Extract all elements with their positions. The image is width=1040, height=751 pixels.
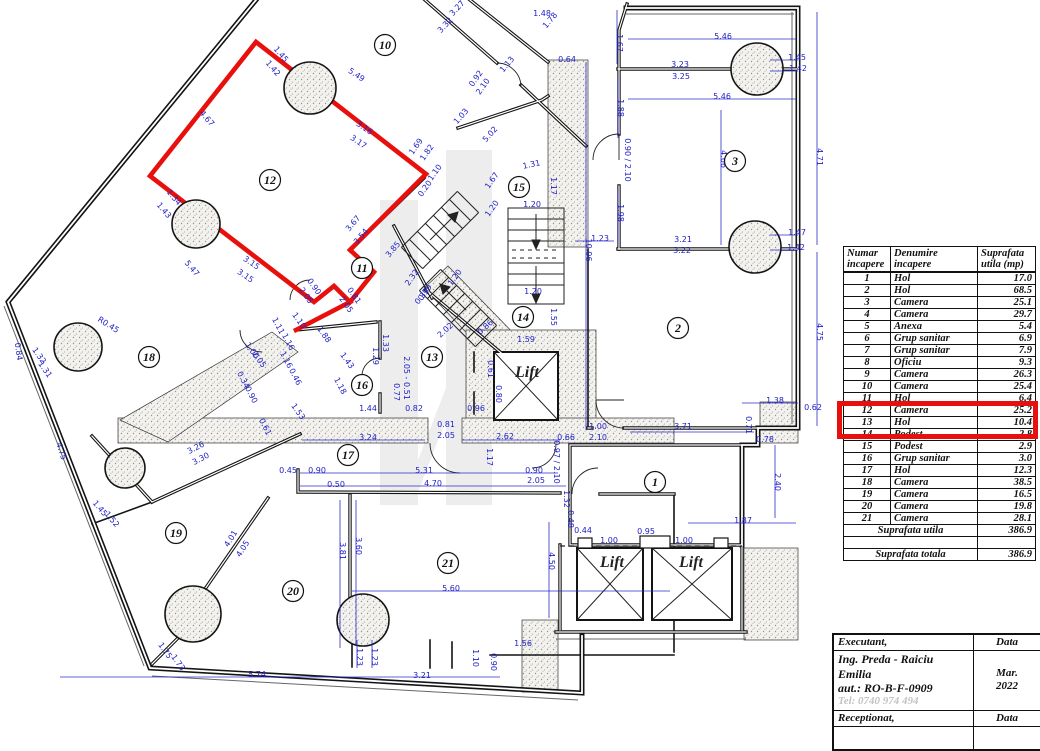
dimension-label: 1.10 <box>426 163 444 183</box>
dimension-label: 5.46 <box>714 32 732 41</box>
room-number: 11 <box>356 261 367 275</box>
table-cell: 18 <box>844 477 891 489</box>
table-row: 20Camera19.8 <box>844 501 1036 513</box>
table-cell: 26.3 <box>978 369 1036 381</box>
table-cell: Camera <box>891 501 978 513</box>
table-row: 17Hol12.3 <box>844 465 1036 477</box>
table-row: 2Hol68.5 <box>844 285 1036 297</box>
room-number: 19 <box>170 526 182 540</box>
dimension-label: 1.43 <box>338 351 356 371</box>
table-total-row: Suprafata totala386.9 <box>844 549 1036 561</box>
table-cell: Oficiu <box>891 357 978 369</box>
dimension-label: 0.45 <box>279 466 297 475</box>
table-cell: 4 <box>844 309 891 321</box>
table-row: 18Camera38.5 <box>844 477 1036 489</box>
dimension-label: 1.44 <box>359 404 377 413</box>
table-cell: 16.5 <box>978 489 1036 501</box>
table-cell: 17 <box>844 465 891 477</box>
empty-cell <box>834 727 974 749</box>
lift-label: Lift <box>599 554 625 571</box>
table-cell: 68.5 <box>978 285 1036 297</box>
dimension-label: 1.67 <box>615 34 624 52</box>
dimension-label: 0.96 <box>467 404 485 413</box>
table-cell: 13 <box>844 417 891 429</box>
room-number: 3 <box>731 154 738 168</box>
table-cell: Hol <box>891 285 978 297</box>
dimension-label: 3.24 <box>359 433 377 442</box>
executant-authorization: aut.: RO-B-F-0909 <box>838 681 969 695</box>
dimension-label: 1.34 <box>165 188 183 207</box>
column <box>284 62 336 114</box>
dimension-label: 1.59 <box>517 335 535 344</box>
table-cell: 11 <box>844 393 891 405</box>
dimension-label: 3.25 <box>672 72 690 81</box>
dimension-label: 1.23 <box>355 648 364 666</box>
table-header-row: Numarincapere Denumireincapere Suprafata… <box>844 247 1036 273</box>
total-value <box>978 537 1036 549</box>
table-row: 8Oficiu9.3 <box>844 357 1036 369</box>
executant-label: Executant, <box>834 635 974 650</box>
dimension-label: 1.18 <box>332 376 348 396</box>
dimension-label: 0.97 / 2.10 <box>552 440 561 483</box>
dimension-label: 3.71 <box>674 422 692 431</box>
dimension-label: 0.90 <box>308 466 326 475</box>
table-row: 6Grup sanitar6.9 <box>844 333 1036 345</box>
column <box>337 594 389 646</box>
table-cell: 25.2 <box>978 405 1036 417</box>
dimension-label: 4.75 <box>815 323 824 341</box>
dimension-label: 5.49 <box>346 66 366 83</box>
column <box>172 200 220 248</box>
dimension-label: 0.61 <box>486 360 495 378</box>
header-numar: Numarincapere <box>844 247 891 273</box>
dimension-label: 0.82 <box>405 404 423 413</box>
column <box>54 323 102 371</box>
data-label-2: Data <box>974 711 1040 726</box>
table-cell: 14 <box>844 429 891 441</box>
table-cell: Podest <box>891 429 978 441</box>
table-cell: Grup sanitar <box>891 333 978 345</box>
dimension-label: 1.43 <box>155 201 173 220</box>
room-number: 2 <box>674 321 681 335</box>
room-number: 18 <box>143 350 155 364</box>
dimension-label: 0.95 <box>637 527 655 536</box>
room-number: 16 <box>356 378 368 392</box>
header-denumire: Denumireincapere <box>891 247 978 273</box>
dimension-label: 5.31 <box>415 466 433 475</box>
dimension-label: 2.05 - 0.51 <box>402 356 411 400</box>
table-row: 9Camera26.3 <box>844 369 1036 381</box>
table-cell: Hol <box>891 417 978 429</box>
table-cell: 19 <box>844 489 891 501</box>
floor-plan: 4.671.451.425.493.163.175.471.341.433.15… <box>0 0 845 720</box>
dimension-label: 5.02 <box>481 125 500 144</box>
table-row: 11Hol6.4 <box>844 393 1036 405</box>
date-year: 2022 <box>996 680 1018 693</box>
dimension-label: 2.10 <box>589 433 607 442</box>
dimension-label: 1.29 <box>371 347 380 365</box>
executant-phone: Tel: 0740 974 494 <box>838 695 969 708</box>
table-cell: 12 <box>844 405 891 417</box>
table-row: 16Grup sanitar3.0 <box>844 453 1036 465</box>
lift-label: Lift <box>514 364 540 381</box>
dimension-label: R0.45 <box>96 315 121 335</box>
dimension-label: 4.75 <box>54 441 68 461</box>
table-cell: 5 <box>844 321 891 333</box>
data-label: Data <box>974 635 1040 650</box>
dimension-label: 1.87 <box>734 516 752 525</box>
table-cell: Camera <box>891 405 978 417</box>
table-row: 13Hol10.4 <box>844 417 1036 429</box>
dimension-label: 1.20 <box>523 200 541 209</box>
table-cell: 6.4 <box>978 393 1036 405</box>
dimension-label: 1.88 <box>616 99 625 117</box>
total-label: Suprafata utila <box>844 525 978 537</box>
total-label: Suprafata totala <box>844 549 978 561</box>
column <box>105 448 145 488</box>
table-cell: Camera <box>891 477 978 489</box>
table-cell: 10.4 <box>978 417 1036 429</box>
table-cell: 17.0 <box>978 272 1036 285</box>
dimension-label: 3.27 <box>448 0 467 18</box>
total-value: 386.9 <box>978 525 1036 537</box>
dimension-label: 1.47 <box>788 228 806 237</box>
dimension-label: 0.77 <box>392 383 401 401</box>
floorplan-page: { "plan": { "colors": {"dim_blue": "#212… <box>0 0 1040 720</box>
total-value: 386.9 <box>978 549 1036 561</box>
dimension-label: 0.62 <box>804 403 822 412</box>
dimension-label: 1.13 <box>498 55 516 74</box>
table-cell: Camera <box>891 381 978 393</box>
table-cell: Grup sanitar <box>891 453 978 465</box>
dimension-label: 4.67 <box>198 109 216 128</box>
dimension-label: 4.71 <box>815 148 824 166</box>
table-cell: Podest <box>891 441 978 453</box>
room-number: 13 <box>426 350 438 364</box>
dimension-label: 2.62 <box>496 432 514 441</box>
dimension-label: 3.17 <box>348 133 368 150</box>
areas-table-container: Numarincapere Denumireincapere Suprafata… <box>843 246 1026 561</box>
table-row: 14Podest2.8 <box>844 429 1036 441</box>
table-cell: 38.5 <box>978 477 1036 489</box>
table-cell: 5.4 <box>978 321 1036 333</box>
lift-label: Lift <box>678 554 704 571</box>
table-cell: Hol <box>891 465 978 477</box>
table-cell: 19.8 <box>978 501 1036 513</box>
dimension-label: 5.47 <box>183 259 201 278</box>
table-row: 3Camera25.1 <box>844 297 1036 309</box>
title-block: Executant, Data Ing. Preda - Raiciu Emil… <box>832 633 1040 751</box>
dimension-label: 4.70 <box>424 479 442 488</box>
table-row: 12Camera25.2 <box>844 405 1036 417</box>
column <box>731 43 783 95</box>
dimension-label: 3.21 <box>413 671 431 680</box>
dimension-label: 1.56 <box>514 639 532 648</box>
room-number: 12 <box>264 173 276 187</box>
dimension-label: 0.90 <box>489 653 498 671</box>
table-cell: 8 <box>844 357 891 369</box>
dimension-label: 1.98 <box>616 204 625 222</box>
areas-table: Numarincapere Denumireincapere Suprafata… <box>843 246 1036 561</box>
table-total-row <box>844 537 1036 549</box>
dimension-label: 2.05 <box>437 431 455 440</box>
dimension-label: 10.06 <box>584 239 593 262</box>
table-cell: 21 <box>844 513 891 525</box>
table-cell: Grup sanitar <box>891 345 978 357</box>
table-cell: Camera <box>891 309 978 321</box>
table-cell: 20 <box>844 501 891 513</box>
table-cell: 2 <box>844 285 891 297</box>
room-number: 14 <box>517 310 529 324</box>
receptionat-label: Receptionat, <box>834 711 974 726</box>
room-number: 1 <box>652 475 658 489</box>
dimension-label: 5.46 <box>713 92 731 101</box>
dimension-label: 0.71 <box>744 416 753 434</box>
table-cell: 12.3 <box>978 465 1036 477</box>
dimension-label: 0.46 <box>287 367 303 387</box>
dimension-label: 1.33 <box>381 334 390 352</box>
table-row: 21Camera28.1 <box>844 513 1036 525</box>
table-row: 19Camera16.5 <box>844 489 1036 501</box>
column <box>165 586 221 642</box>
room-number: 15 <box>513 180 525 194</box>
table-cell: Camera <box>891 513 978 525</box>
dimension-label: 3.22 <box>673 246 691 255</box>
table-row: 15Podest2.9 <box>844 441 1036 453</box>
executant-name: Ing. Preda - Raiciu Emilia <box>838 652 969 681</box>
dimension-label: 1.20 <box>524 287 542 296</box>
dimension-label: 0.90 <box>243 385 259 405</box>
dimension-label: 0.84 <box>13 342 24 361</box>
table-row: 7Grup sanitar7.9 <box>844 345 1036 357</box>
dimension-label: 1.32 <box>562 490 571 508</box>
dimension-label: 3.21 <box>674 235 692 244</box>
dimension-label: 0.78 <box>756 435 774 444</box>
dimension-label: 1.00 <box>600 536 618 545</box>
dimension-label: 1.23 <box>370 648 379 666</box>
table-cell: 2.9 <box>978 441 1036 453</box>
date-month: Mar. <box>996 667 1018 680</box>
table-cell: 3.0 <box>978 453 1036 465</box>
table-cell: Hol <box>891 272 978 285</box>
total-label <box>844 537 978 549</box>
dimension-label: 1.45 <box>788 53 806 62</box>
table-cell: 10 <box>844 381 891 393</box>
table-cell: 25.1 <box>978 297 1036 309</box>
table-row: 10Camera25.4 <box>844 381 1036 393</box>
table-cell: 3 <box>844 297 891 309</box>
table-cell: 6.9 <box>978 333 1036 345</box>
dimension-label: 5.60 <box>442 584 460 593</box>
table-cell: 25.4 <box>978 381 1036 393</box>
table-cell: 9 <box>844 369 891 381</box>
table-cell: 6 <box>844 333 891 345</box>
dimension-label: 0.90 / 2.10 <box>623 138 632 181</box>
table-cell: 7 <box>844 345 891 357</box>
dimension-label: 1.10 <box>471 649 480 667</box>
table-cell: 9.3 <box>978 357 1036 369</box>
dimension-label: 1.42 <box>789 64 807 73</box>
table-cell: Hol <box>891 393 978 405</box>
dimension-label: 1.31 <box>522 158 541 171</box>
table-cell: 2.8 <box>978 429 1036 441</box>
dimension-label: 1.17 <box>549 177 558 195</box>
dimension-label: 0.64 <box>558 55 576 64</box>
dimension-label: 4.50 <box>547 552 556 570</box>
dimension-label: 1.00 <box>589 422 607 431</box>
table-total-row: Suprafata utila386.9 <box>844 525 1036 537</box>
room-number: 21 <box>441 556 454 570</box>
dimension-label: 1.38 <box>766 396 784 405</box>
room-numbers: 123101112131415161718192021 <box>139 35 746 602</box>
header-suprafata: Suprafatautila (mp) <box>978 247 1036 273</box>
dimension-label: 3.15 <box>235 267 255 284</box>
table-cell: Camera <box>891 489 978 501</box>
dimension-label: 1.00 <box>675 536 693 545</box>
dimension-label: 5.74 <box>248 670 266 679</box>
room-number: 20 <box>286 584 299 598</box>
empty-cell <box>974 727 1040 749</box>
room-number: 17 <box>342 448 355 462</box>
dimension-label: 3.23 <box>671 60 689 69</box>
dimension-label: 0.80 <box>494 385 503 403</box>
table-cell: 16 <box>844 453 891 465</box>
dimension-label: 0.90 <box>525 466 543 475</box>
dimension-label: 1.55 <box>549 308 558 326</box>
room-number: 10 <box>379 38 391 52</box>
dimension-label: 0.81 <box>437 420 455 429</box>
dimension-label: 0.50 <box>327 480 345 489</box>
table-cell: Anexa <box>891 321 978 333</box>
column <box>729 221 781 273</box>
dimension-label: 2.05 <box>527 476 545 485</box>
table-cell: 7.9 <box>978 345 1036 357</box>
dimension-label: 3.81 <box>338 542 347 560</box>
table-cell: Camera <box>891 369 978 381</box>
table-row: 5Anexa5.4 <box>844 321 1036 333</box>
table-cell: Camera <box>891 297 978 309</box>
table-cell: 28.1 <box>978 513 1036 525</box>
table-row: 4Camera29.7 <box>844 309 1036 321</box>
dimension-label: 1.42 <box>787 243 805 252</box>
table-cell: 1 <box>844 272 891 285</box>
dimension-label: 0.44 <box>574 526 592 535</box>
table-row: 1Hol17.0 <box>844 272 1036 285</box>
dimension-label: 3.60 <box>354 537 363 555</box>
dimension-label: 1.17 <box>485 448 494 466</box>
table-cell: 15 <box>844 441 891 453</box>
dimension-label: 2.40 <box>773 473 782 491</box>
table-cell: 29.7 <box>978 309 1036 321</box>
